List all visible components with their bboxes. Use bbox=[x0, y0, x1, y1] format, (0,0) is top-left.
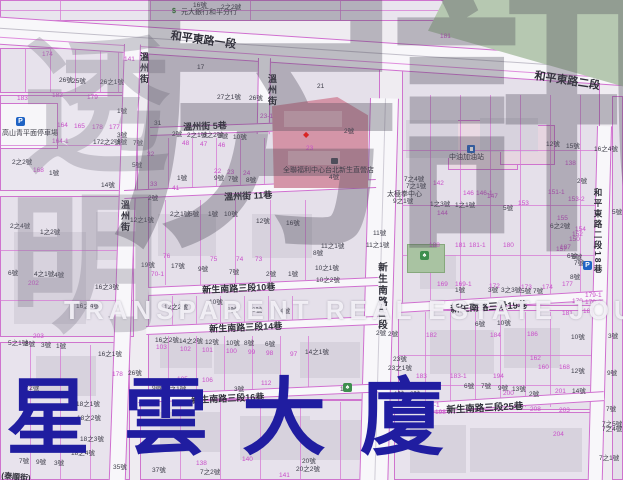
parcel-number-label: 168 bbox=[33, 168, 44, 175]
parcel-number-label: 147 bbox=[487, 194, 498, 201]
house-number-label: 10號 bbox=[224, 212, 238, 219]
house-number-label: 3號 bbox=[218, 134, 228, 141]
house-number-label: 10號 bbox=[497, 321, 511, 328]
parcel-number-label: 75 bbox=[210, 257, 217, 264]
parcel-number-label: 100 bbox=[226, 349, 237, 356]
parcel-number-label: 179 bbox=[87, 95, 98, 102]
parcel-line bbox=[520, 95, 521, 300]
house-number-label: 3號 bbox=[117, 140, 127, 147]
parcel-number-label: 103 bbox=[156, 345, 167, 352]
building-footprint bbox=[470, 428, 582, 472]
building-footprint bbox=[480, 118, 538, 152]
house-number-label: 16號 bbox=[286, 221, 300, 228]
house-number-label: 7號 bbox=[481, 384, 491, 391]
house-number-label: 4號 bbox=[280, 309, 290, 316]
house-number-label: 12號 bbox=[546, 142, 560, 149]
parcel-number-label: 174 bbox=[542, 285, 553, 292]
house-number-label: 7之1號 bbox=[599, 456, 619, 463]
parcel-number-label: 101 bbox=[202, 348, 213, 355]
parcel-number-label: 41 bbox=[172, 186, 179, 193]
house-number-label: 16之1號 bbox=[98, 352, 122, 359]
parcel-line bbox=[0, 300, 134, 301]
parcel-line bbox=[150, 0, 151, 20]
house-number-label: 7號 bbox=[533, 289, 543, 296]
house-number-label: 12之2號 bbox=[164, 305, 188, 312]
parcel-number-label: 32 bbox=[147, 152, 154, 159]
parcel-number-label: 155 bbox=[557, 216, 568, 223]
house-number-label: 10之1號 bbox=[315, 266, 339, 273]
parcel-number-label: 177 bbox=[109, 125, 120, 132]
parcel-number-label: 203 bbox=[33, 334, 44, 341]
house-number-label: 10號 bbox=[233, 135, 247, 142]
parcel-number-label: 204 bbox=[553, 432, 564, 439]
marker-icon: ◆ bbox=[303, 131, 309, 139]
poi-label: 元大銀行和平分行 bbox=[181, 9, 237, 16]
house-number-label: 7之4號 bbox=[602, 427, 622, 434]
house-number-label: 2號 bbox=[148, 196, 158, 203]
parcel-number-label: 33 bbox=[150, 182, 157, 189]
parcel-line bbox=[460, 95, 461, 300]
house-number-label: 7號 bbox=[229, 270, 239, 277]
house-number-label: 5號 bbox=[612, 210, 622, 217]
parcel-number-label: 181 bbox=[440, 34, 451, 41]
house-number-label: 4之1號 bbox=[34, 272, 54, 279]
house-number-label: 25號 bbox=[72, 79, 86, 86]
parcel-line bbox=[550, 95, 551, 300]
house-number-label: 2號 bbox=[376, 331, 386, 338]
street-name-label: 溫州街 5巷 bbox=[183, 118, 227, 133]
parcel-number-label: 138 bbox=[565, 161, 576, 168]
house-number-label: 6號 bbox=[227, 308, 237, 315]
street-name-label: 新生南路三段 bbox=[374, 262, 388, 331]
house-number-label: 1號 bbox=[56, 344, 66, 351]
parcel-number-label: 178 bbox=[92, 125, 103, 132]
parking-icon: P bbox=[16, 117, 25, 126]
poi-label: 太極拳中心 bbox=[387, 191, 422, 198]
parcel-number-label: 177 bbox=[562, 282, 573, 289]
parcel-line bbox=[192, 138, 193, 190]
house-number-label: 12號 bbox=[205, 340, 219, 347]
parcel-number-label: 48 bbox=[182, 141, 189, 148]
house-number-label: 1號 bbox=[177, 176, 187, 183]
parcel-number-label: 183 bbox=[17, 96, 28, 103]
parcel-number-label: 201 bbox=[555, 389, 566, 396]
house-number-label: 6號 bbox=[572, 255, 582, 262]
house-number-label: 5號 bbox=[503, 206, 513, 213]
parcel-number-label: 23 bbox=[227, 170, 234, 177]
parcel-number-label: 47 bbox=[200, 142, 207, 149]
parcel-number-label: 194 bbox=[493, 374, 504, 381]
parcel-number-label: 164 bbox=[57, 123, 68, 130]
house-number-label: 37號 bbox=[152, 468, 166, 475]
house-number-label: 6號 bbox=[475, 322, 485, 329]
house-number-label: 3號 bbox=[488, 288, 498, 295]
house-number-label: 6號 bbox=[8, 271, 18, 278]
parcel-number-label: 102 bbox=[180, 347, 191, 354]
parcel-number-label: 76 bbox=[163, 254, 170, 261]
parking-lot-area bbox=[0, 103, 58, 149]
house-number-label: 16之3號 bbox=[95, 285, 119, 292]
bank-icon: $ bbox=[172, 8, 176, 15]
house-number-label: 14之2號 bbox=[179, 339, 203, 346]
cart-icon bbox=[331, 158, 338, 164]
house-number-label: 12號 bbox=[571, 369, 585, 376]
parcel-number-label: 184 bbox=[490, 333, 501, 340]
parcel-number-label: 182 bbox=[52, 93, 63, 100]
building-footprint bbox=[430, 330, 494, 374]
house-number-label: 26之1號 bbox=[100, 80, 124, 87]
street-name-label: 溫州街 bbox=[119, 200, 132, 233]
parcel-number-label: 99 bbox=[248, 350, 255, 357]
parcel-number-label: 153 bbox=[518, 201, 529, 208]
house-number-label: 2號 bbox=[529, 392, 539, 399]
house-number-label: 14號 bbox=[572, 389, 586, 396]
parcel-number-label: 181-1 bbox=[469, 243, 486, 250]
house-number-label: 6號 bbox=[265, 342, 275, 349]
parcel-number-label: 73 bbox=[255, 257, 262, 264]
house-number-label: 7之1號 bbox=[406, 184, 426, 191]
street-name-label: 溫州街 bbox=[266, 74, 279, 107]
house-number-label: 14之1號 bbox=[305, 350, 329, 357]
house-number-label: 3號 bbox=[608, 334, 618, 341]
house-number-label: 1號 bbox=[208, 212, 218, 219]
house-number-label: 12之1號 bbox=[130, 218, 154, 225]
house-number-label: 4號 bbox=[329, 175, 339, 182]
parcel-number-label: 97 bbox=[290, 352, 297, 359]
parking-icon: P bbox=[583, 261, 592, 270]
house-number-label: 2號 bbox=[577, 179, 587, 186]
parcel-number-label: 169 bbox=[437, 282, 448, 289]
parcel-number-label: 142 bbox=[433, 181, 444, 188]
parcel-number-label: 150 bbox=[569, 237, 580, 244]
house-number-label: 2之1號 bbox=[170, 212, 190, 219]
parcel-number-label: 203 bbox=[559, 408, 570, 415]
house-number-label: 13號 bbox=[512, 387, 526, 394]
house-number-label: 26號 bbox=[249, 96, 263, 103]
house-number-label: 2號 bbox=[172, 132, 182, 139]
parcel-number-label: 165 bbox=[74, 124, 85, 131]
pump-icon bbox=[467, 145, 475, 153]
parcel-line bbox=[25, 48, 26, 93]
house-number-label: 3之3號 bbox=[501, 288, 521, 295]
parcel-number-label: 24 bbox=[243, 171, 250, 178]
house-number-label: 5號 bbox=[521, 289, 531, 296]
house-number-label: 7之2號 bbox=[200, 470, 220, 477]
parcel-number-label: 179 bbox=[572, 299, 583, 306]
house-number-label: 8號 bbox=[244, 341, 254, 348]
house-number-label: 3號 bbox=[41, 343, 51, 350]
house-number-label: 9之1號 bbox=[393, 199, 413, 206]
house-number-label: 8號 bbox=[246, 178, 256, 185]
house-number-label: 11之1號 bbox=[321, 244, 344, 251]
building-footprint bbox=[406, 120, 458, 158]
house-number-label: 16之4號 bbox=[594, 147, 618, 154]
parcel-line bbox=[340, 0, 341, 20]
house-number-label: 1號 bbox=[455, 288, 465, 295]
house-number-label: 11之1號 bbox=[366, 243, 389, 250]
parcel-number-label: 160 bbox=[538, 365, 549, 372]
house-number-label: 15號 bbox=[566, 144, 580, 151]
house-number-label: 10之2號 bbox=[316, 278, 340, 285]
house-number-label: 23號 bbox=[393, 357, 407, 364]
parcel-line bbox=[0, 250, 134, 251]
parcel-line bbox=[398, 355, 598, 356]
parcel-number-label: 182 bbox=[426, 333, 437, 340]
house-number-label: 1號 bbox=[288, 272, 298, 279]
parcel-number-label: 164-1 bbox=[52, 139, 69, 146]
house-number-label: 10號 bbox=[226, 341, 240, 348]
house-number-label: 14號 bbox=[101, 183, 115, 190]
house-number-label: 6之2號 bbox=[550, 224, 570, 231]
parcel-line bbox=[168, 138, 169, 190]
parcel-number-label: 151-1 bbox=[548, 190, 565, 197]
house-number-label: 5號 bbox=[132, 163, 142, 170]
highlighted-building bbox=[272, 97, 368, 188]
park-icon: ♠ bbox=[420, 251, 429, 260]
street-name-label: 和平東路二段18巷 bbox=[592, 188, 604, 275]
house-number-label: 17號 bbox=[171, 264, 185, 271]
parcel-number-label: 168 bbox=[559, 365, 570, 372]
street-name-label: 溫州街 bbox=[138, 52, 151, 85]
poi-label: 全聯福利中心台北新生直營店 bbox=[283, 167, 374, 174]
house-number-label: 27之1號 bbox=[217, 95, 241, 102]
house-number-label: 17 bbox=[197, 65, 204, 72]
parcel-number-label: 46 bbox=[218, 143, 225, 150]
house-number-label: 1之2號 bbox=[40, 230, 60, 237]
parcel-number-label: 202 bbox=[28, 281, 39, 288]
house-number-label: 1號 bbox=[117, 109, 127, 116]
parcel-number-label: 200 bbox=[503, 391, 514, 398]
parcel-number-label: 187 bbox=[583, 309, 594, 316]
parcel-line bbox=[305, 200, 306, 285]
building-inner-block bbox=[284, 111, 342, 127]
parcel-number-label: 187 bbox=[560, 245, 571, 252]
house-number-label: 2號 bbox=[266, 272, 276, 279]
house-number-label: 4號 bbox=[54, 273, 64, 280]
parcel-line bbox=[165, 200, 166, 285]
parcel-number-label: 186 bbox=[527, 332, 538, 339]
house-number-label: 10號 bbox=[571, 335, 585, 342]
street-name-label: 溫州街 11巷 bbox=[224, 188, 273, 203]
house-number-label: 7號 bbox=[228, 177, 238, 184]
house-number-label: 2號 bbox=[388, 332, 398, 339]
parcel-number-label: 74 bbox=[236, 257, 243, 264]
house-number-label: 20之2號 bbox=[296, 467, 320, 474]
parcel-number-label: 188 bbox=[429, 243, 440, 250]
house-number-label: 19號 bbox=[141, 263, 155, 270]
parcel-number-label: 70-1 bbox=[151, 272, 164, 279]
building-footprint bbox=[158, 214, 216, 256]
house-number-label: 11號 bbox=[373, 231, 386, 238]
house-number-label: 1之1號 bbox=[455, 203, 475, 210]
house-number-label: 8號 bbox=[25, 342, 35, 349]
parcel-line bbox=[60, 0, 61, 20]
house-number-label: 2之2號 bbox=[12, 160, 32, 167]
house-number-label: 21 bbox=[317, 84, 324, 91]
house-number-label: 10號 bbox=[209, 300, 223, 307]
parcel-number-label: 174 bbox=[42, 52, 53, 59]
parcel-number-label: 162 bbox=[530, 356, 541, 363]
parcel-number-label: 144 bbox=[437, 211, 448, 218]
house-number-label: 5號 bbox=[189, 212, 199, 219]
house-number-label: 12號 bbox=[256, 219, 270, 226]
parcel-number-label: 180 bbox=[503, 243, 514, 250]
poi-label: 中油加油站 bbox=[449, 154, 484, 161]
parcel-number-label: 98 bbox=[266, 351, 273, 358]
map-canvas: 透 明 房 訊 TRANSPARENT REAL ESTATE JOURNAL … bbox=[0, 0, 623, 480]
poi-label: 高山青平面停車場 bbox=[2, 130, 58, 137]
house-number-label: 1之3號 bbox=[430, 202, 450, 209]
house-number-label: 9號 bbox=[607, 371, 617, 378]
parcel-number-label: 179-2 bbox=[585, 300, 602, 307]
parcel-number-label: 141 bbox=[279, 473, 290, 480]
parcel-line bbox=[264, 138, 265, 190]
parcel-number-label: 141 bbox=[124, 57, 135, 64]
house-number-label: 9號 bbox=[214, 176, 224, 183]
house-number-label: 1號 bbox=[49, 171, 59, 178]
parcel-line bbox=[250, 0, 251, 20]
parcel-number-label: 23 bbox=[306, 146, 313, 153]
parcel-number-label: 146 bbox=[463, 191, 474, 198]
parcel-number-label: 153-2 bbox=[568, 197, 585, 204]
parcel-number-label: 22 bbox=[214, 169, 221, 176]
parcel-line bbox=[196, 296, 197, 326]
house-number-label: 2之4號 bbox=[10, 224, 30, 231]
house-number-label: 31 bbox=[154, 121, 161, 128]
building-title-overlay: 星雲大廈 bbox=[6, 376, 478, 460]
house-number-label: 8號 bbox=[313, 251, 323, 258]
parcel-line bbox=[550, 312, 551, 407]
parcel-number-label: 181 bbox=[562, 311, 573, 318]
house-number-label: 7號 bbox=[606, 407, 616, 414]
parcel-number-label: 23-1 bbox=[260, 114, 273, 121]
house-number-label: 7號 bbox=[133, 141, 143, 148]
parcel-number-label: 208 bbox=[530, 407, 541, 414]
house-number-label: 16之4號 bbox=[76, 304, 100, 311]
house-number-label: 8號 bbox=[252, 308, 262, 315]
house-number-label: 2號 bbox=[344, 129, 354, 136]
parcel-line bbox=[75, 48, 76, 93]
house-number-label: 26號 bbox=[59, 78, 73, 85]
house-number-label: 9號 bbox=[198, 267, 208, 274]
parcel-number-label: 181 bbox=[455, 243, 466, 250]
parcel-line bbox=[240, 138, 241, 190]
